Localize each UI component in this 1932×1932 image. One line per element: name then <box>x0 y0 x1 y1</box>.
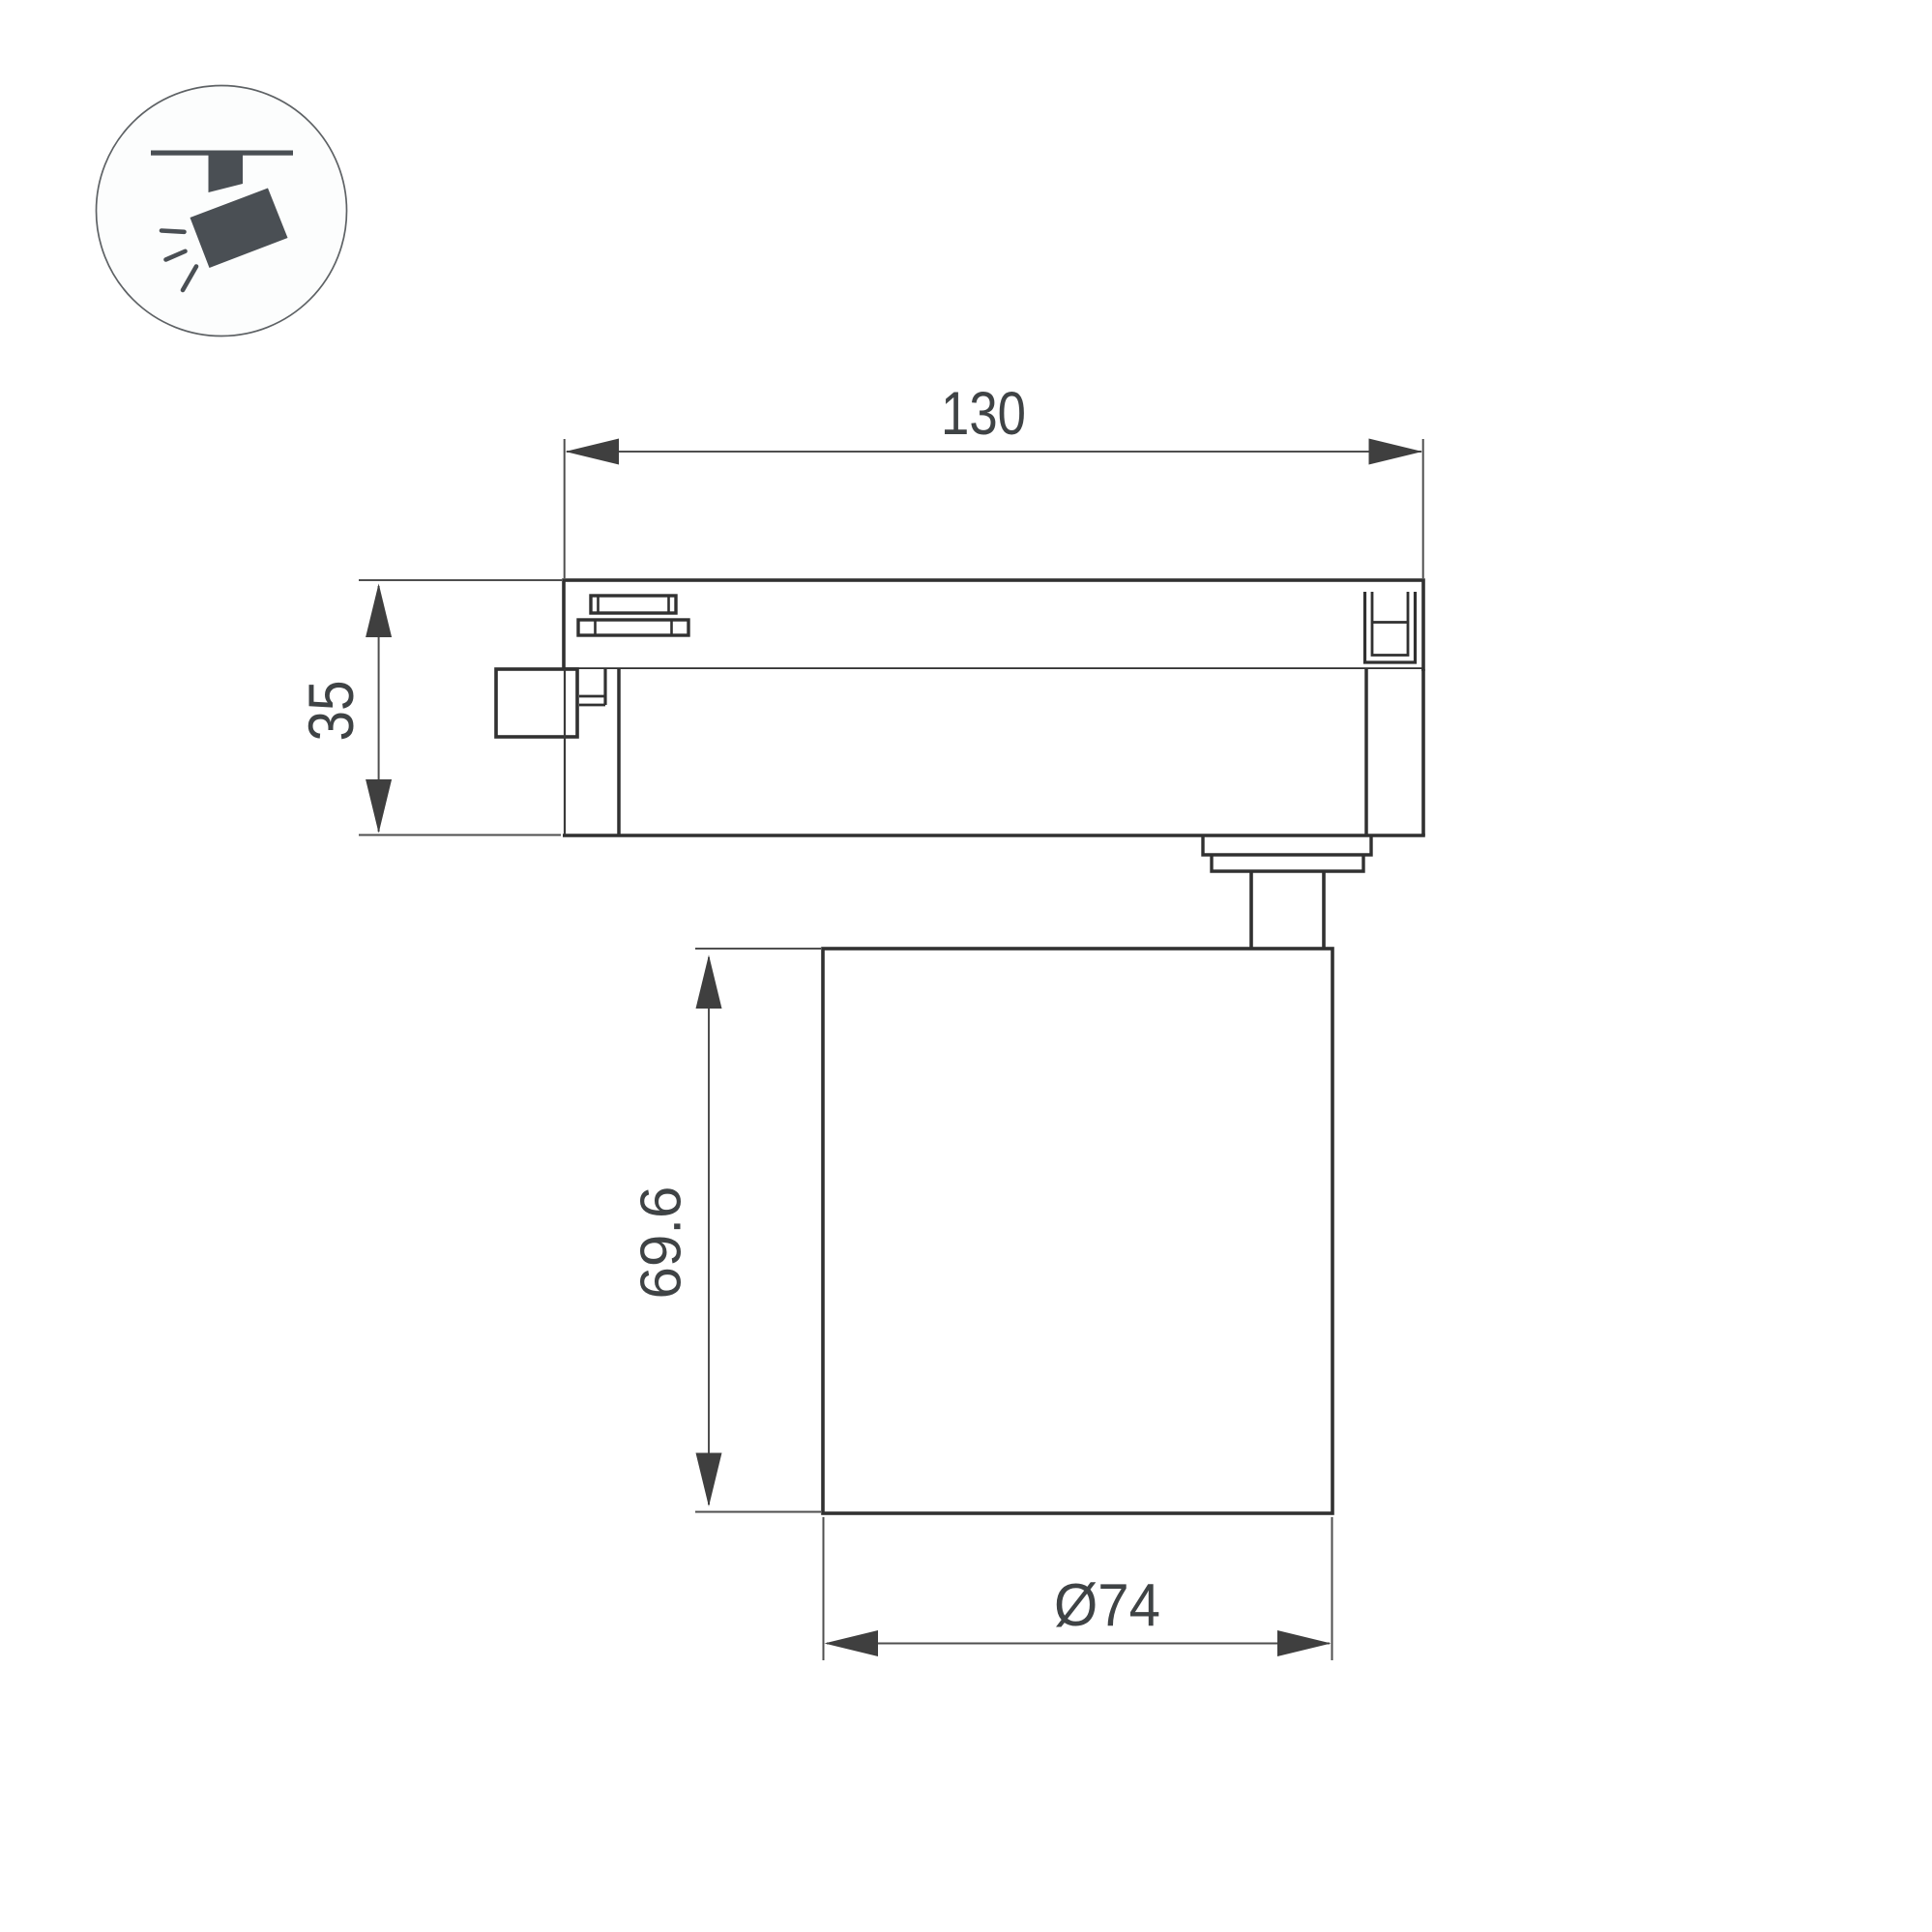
svg-text:69.6: 69.6 <box>629 1186 693 1300</box>
svg-text:130: 130 <box>941 380 1026 448</box>
svg-text:Ø74: Ø74 <box>1054 1572 1160 1639</box>
svg-text:35: 35 <box>296 681 366 742</box>
